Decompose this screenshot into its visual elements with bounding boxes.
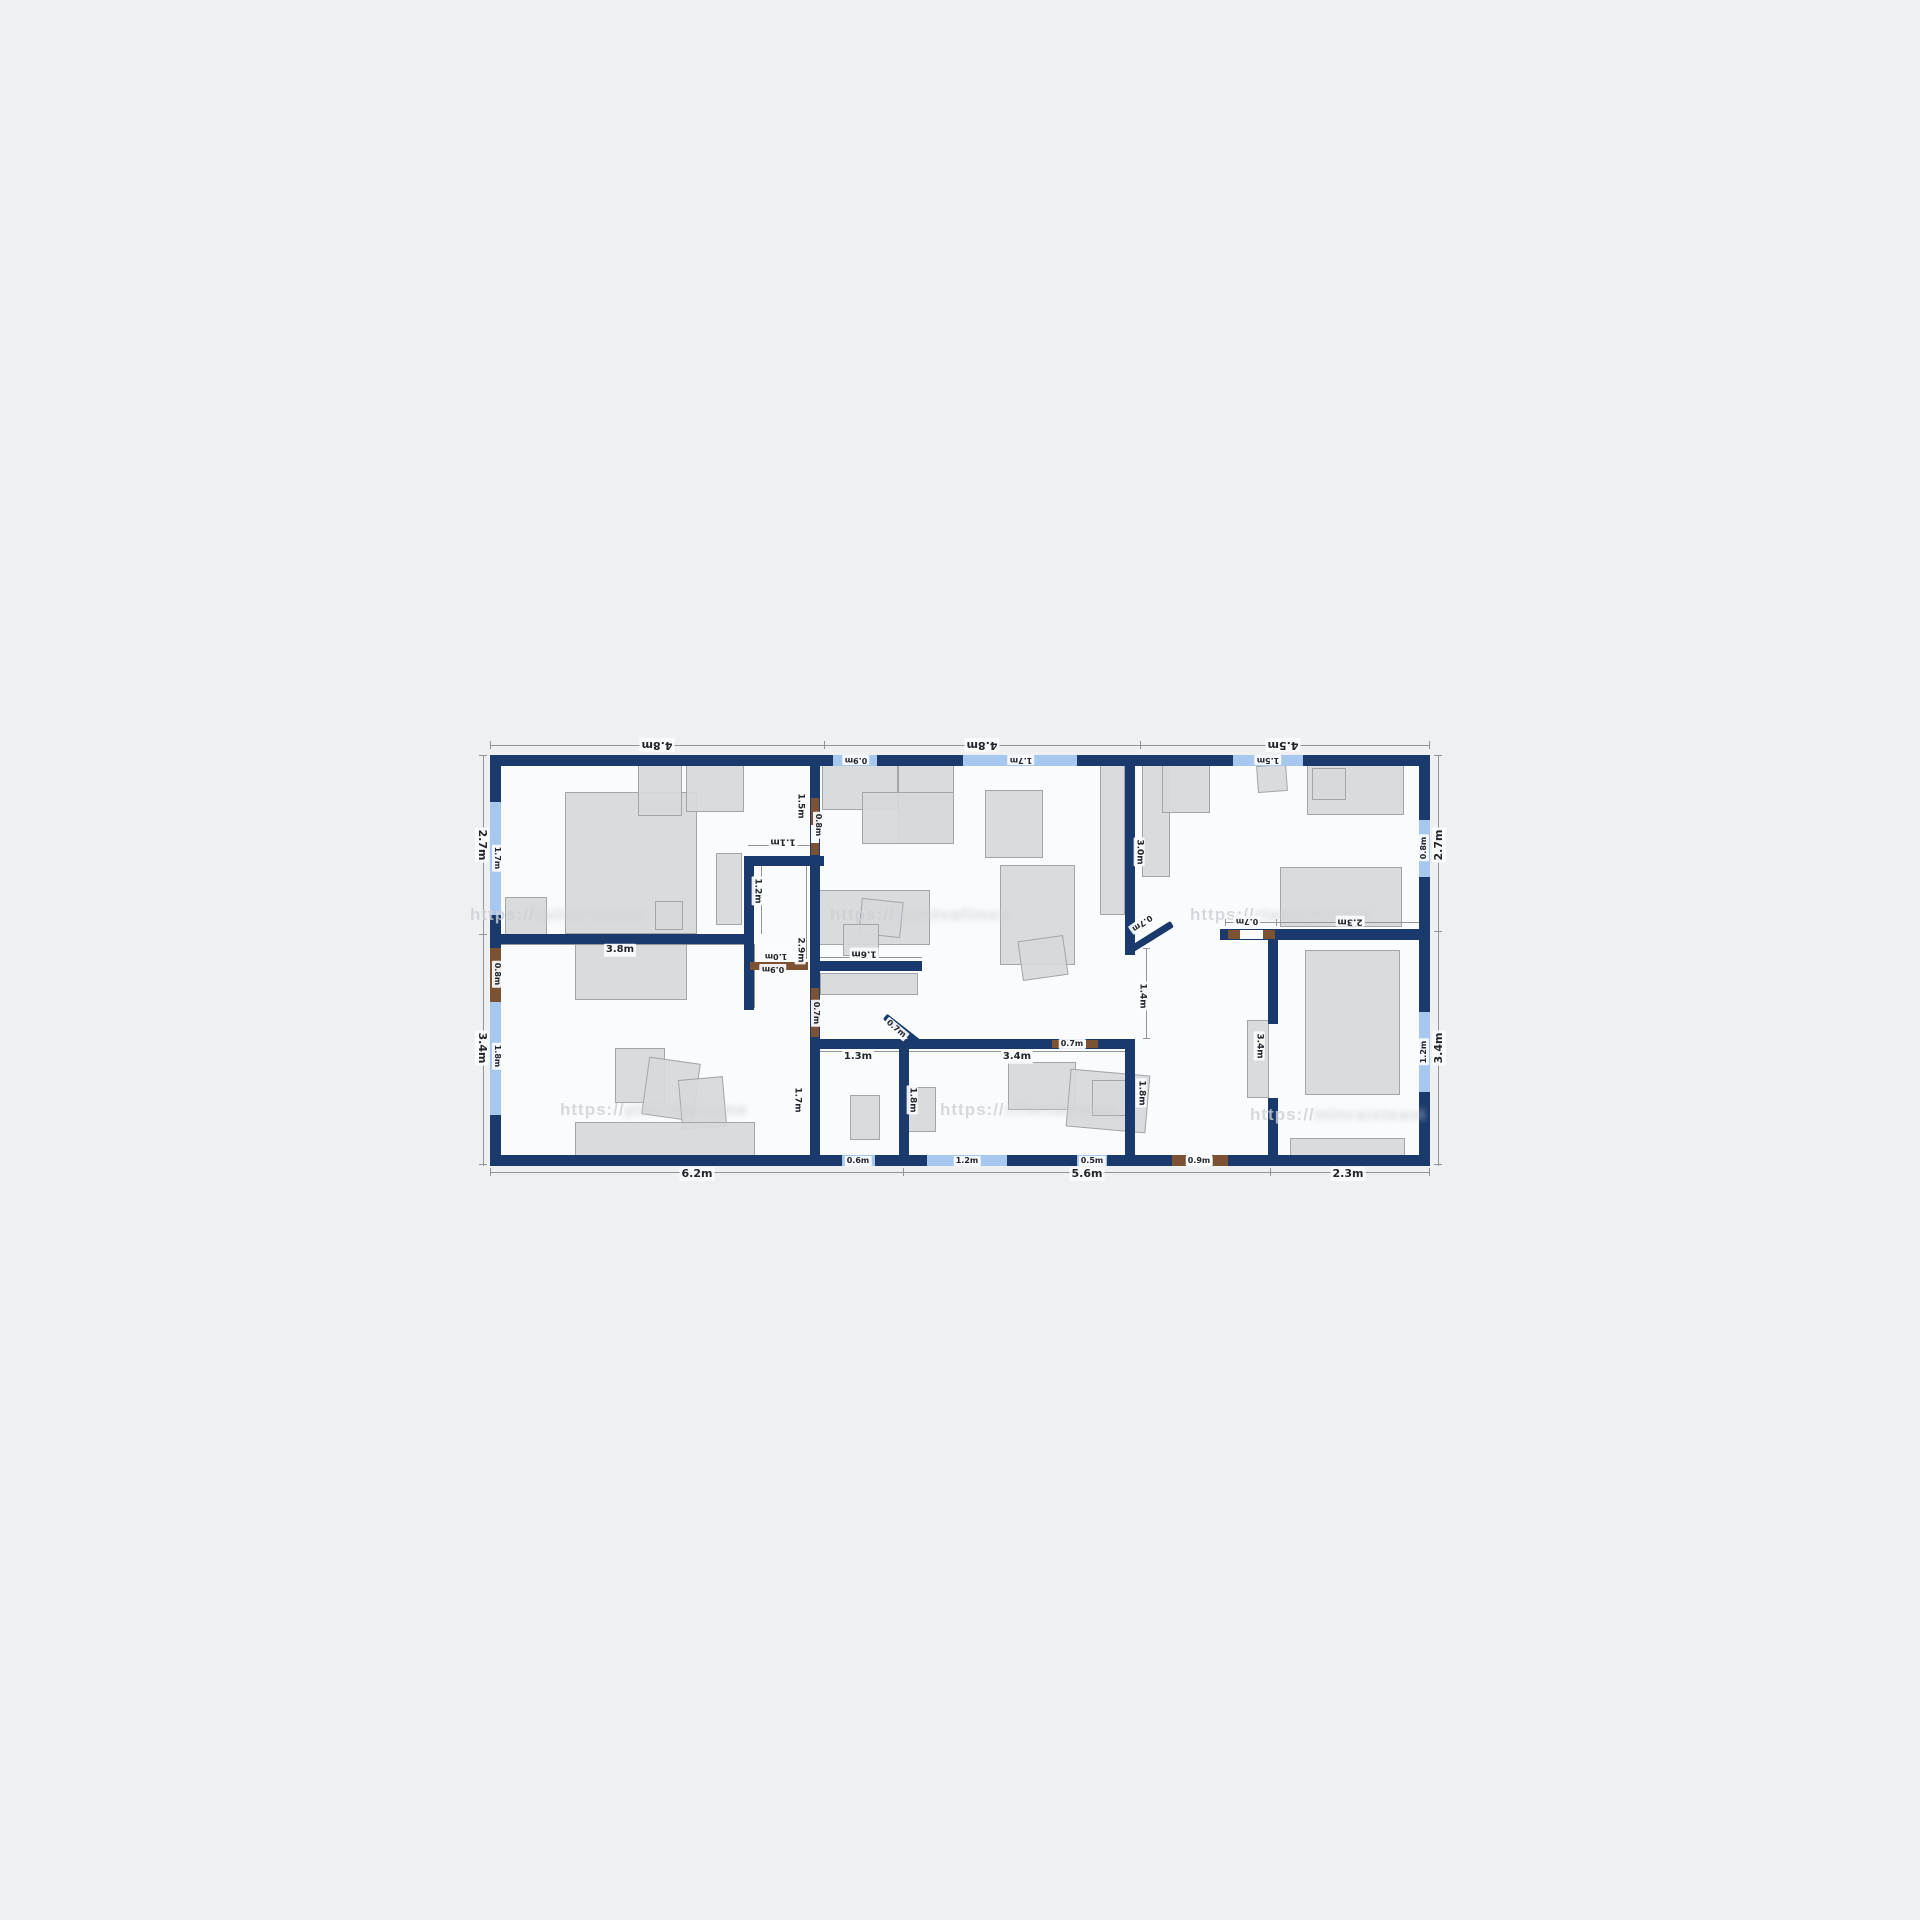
dimension-label: 2.7m [475,828,489,863]
furniture-item [655,901,683,930]
furniture-item [1100,765,1125,915]
furniture-item [1305,950,1400,1095]
dimension-label: 1.8m [492,1043,502,1070]
dimension-tick [479,1164,487,1165]
door-segment [1212,1155,1228,1166]
dimension-line [1438,755,1439,1166]
furniture-item [985,790,1043,858]
dimension-tick [1140,741,1141,749]
furniture-item [820,973,918,995]
furniture-item [686,764,744,812]
furniture-item [575,1122,755,1158]
dimension-label: 3.4m [1432,1031,1446,1066]
dimension-label: 2.3m [1335,915,1364,926]
furniture-item [1162,763,1210,813]
dimension-line [483,755,484,1166]
dimension-tick [1434,931,1442,932]
wall-segment [1268,929,1278,1024]
watermark-blur: tailmrneslim [535,905,647,924]
dimension-tick [824,741,825,749]
dimension-label: 0.8m [492,961,502,988]
watermark-illegible: https://lbimtvafimes [830,905,1011,925]
furniture-item [716,853,742,925]
dimension-label: 1.7m [791,1085,802,1114]
wall-segment [810,961,922,971]
dimension-tick [490,741,491,749]
dimension-label: 2.3m [1331,1167,1366,1181]
dimension-tick [1143,1038,1150,1039]
dimension-line [490,1172,1430,1173]
furniture-item [850,1095,880,1140]
dimension-label: 3.4m [1253,1031,1264,1060]
dimension-tick [490,1168,491,1176]
dimension-label: 4.5m [1266,738,1301,752]
dimension-label: 2.7m [1432,828,1446,863]
dimension-label: 1.5m [1255,755,1282,765]
dimension-label: 0.9m [760,964,787,974]
watermark-blur: mlnraisteavi [1315,1105,1426,1124]
dimension-label: 5.6m [1070,1167,1105,1181]
dimension-tick [1143,948,1150,949]
dimension-tick [903,1168,904,1176]
door-segment [1228,930,1240,939]
dimension-label: 6.2m [680,1167,715,1181]
dimension-label: 0.7m [1234,916,1261,926]
furniture-item [862,792,954,844]
dimension-label: 1.8m [1135,1078,1146,1107]
watermark-blur: lbimtvafimes [895,905,1011,924]
dimension-label: 3.8m [604,944,636,957]
dimension-tick [479,755,487,756]
dimension-label: 1.2m [751,876,762,905]
dimension-tick [1434,755,1442,756]
watermark-illegible: https://tailmrneslim [470,905,647,925]
dimension-label: 1.7m [492,845,502,872]
furniture-item [1312,768,1346,800]
dimension-tick [1434,1164,1442,1165]
dimension-label: 1.6m [849,947,878,958]
wall-segment [1125,1039,1135,1155]
dimension-label: 0.9m [1186,1156,1213,1166]
watermark-blur: plmrtanisume [625,1100,748,1119]
dimension-label: 3.4m [1001,1051,1033,1064]
dimension-label: 1.2m [954,1156,981,1166]
dimension-label: 3.4m [475,1031,489,1066]
watermark-blur: stiwnalrmiec [1005,1100,1120,1119]
dimension-label: 0.9m [843,755,870,765]
dimension-label: 1.4m [1136,981,1147,1010]
watermark-url-prefix: https:// [560,1100,625,1119]
furniture-item [638,764,682,816]
dimension-label: 2.9m [794,935,805,964]
furniture-item [1256,764,1288,793]
dimension-tick [1270,1168,1271,1176]
dimension-label: 0.6m [845,1156,872,1166]
door-gap [1240,930,1263,939]
watermark-url-prefix: https:// [830,905,895,924]
furniture-item [1017,935,1068,981]
dimension-label: 1.1m [768,835,797,846]
dimension-label: 1.8m [906,1085,917,1114]
watermark-url-prefix: https:// [1250,1105,1315,1124]
dimension-label: 0.8m [813,812,823,839]
door-segment [1172,1155,1186,1166]
dimension-label: 1.3m [842,1051,874,1064]
dimension-label: 0.7m [1059,1039,1086,1049]
dimension-label: 0.8m [1419,835,1429,862]
dimension-label: 4.8m [640,738,675,752]
watermark-illegible: https://mlnraisteavi [1250,1105,1426,1125]
dimension-label: 1.0m [763,951,790,961]
dimension-label: 3.0m [1133,837,1144,866]
watermark-illegible: https://stiwnalrmiec [940,1100,1120,1120]
dimension-label: 4.8m [965,738,1000,752]
watermark-url-prefix: https:// [470,905,535,924]
dimension-label: 0.5m [1079,1156,1106,1166]
dimension-label: 1.5m [794,791,805,820]
dimension-line [754,944,755,1008]
dimension-tick [1429,1168,1430,1176]
floorplan-page: https://tailmrneslimhttps://lbimtvafimes… [0,0,1920,1920]
door-segment [811,843,819,855]
door-segment [1263,930,1275,939]
dimension-label: 1.7m [1008,755,1035,765]
dimension-label: 0.7m [811,1000,821,1027]
watermark-illegible: https://plmrtanisume [560,1100,748,1120]
watermark-url-prefix: https:// [940,1100,1005,1119]
dimension-line [806,866,807,959]
dimension-label: 1.2m [1419,1039,1429,1066]
door-segment [1086,1040,1098,1048]
wall-segment [496,934,754,944]
dimension-tick [1429,741,1430,749]
dimension-tick [479,934,487,935]
